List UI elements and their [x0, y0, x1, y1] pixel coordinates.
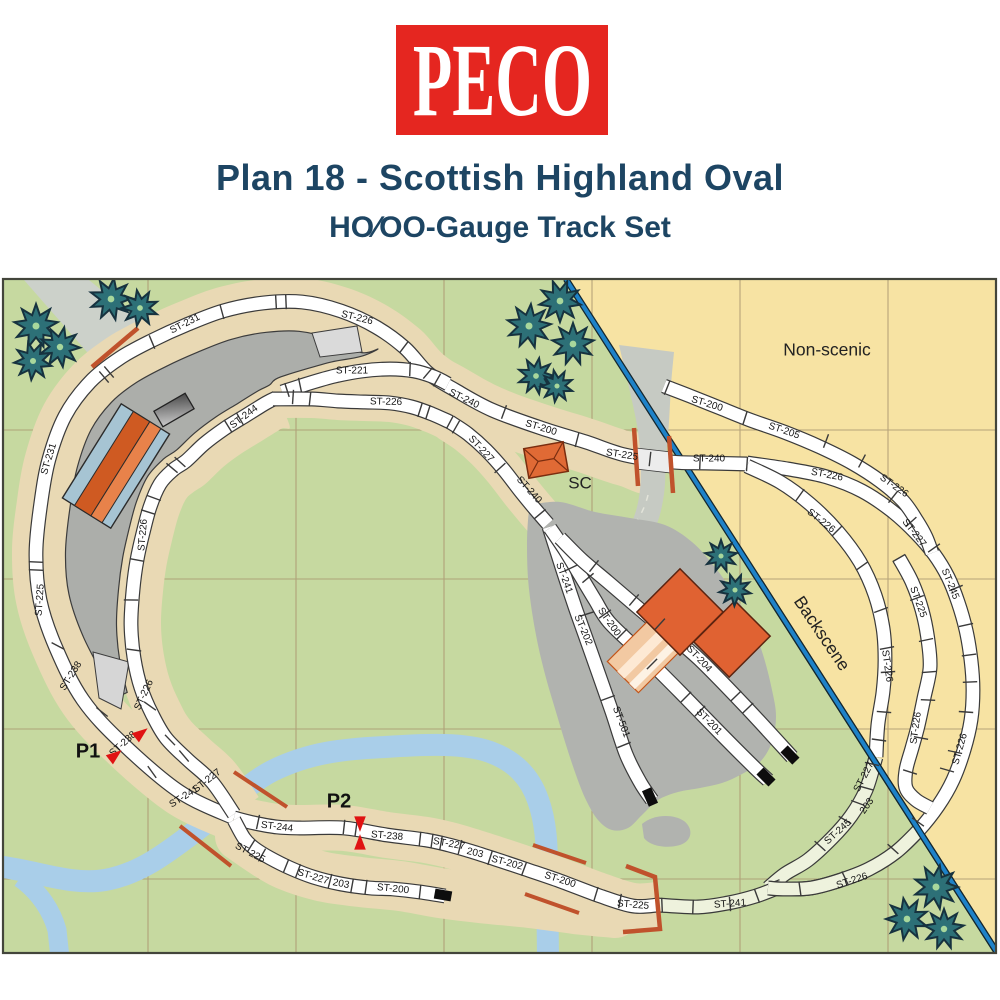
svg-text:ST-240: ST-240	[693, 454, 726, 465]
svg-text:ST-225: ST-225	[34, 583, 47, 616]
svg-text:Non-scenic: Non-scenic	[783, 340, 871, 360]
svg-text:SC: SC	[568, 473, 592, 492]
svg-text:ST-221: ST-221	[336, 366, 369, 377]
svg-text:P2: P2	[327, 790, 351, 812]
svg-text:ST-226: ST-226	[370, 396, 403, 408]
svg-text:P1: P1	[76, 740, 100, 762]
svg-text:ST-241: ST-241	[714, 897, 747, 910]
